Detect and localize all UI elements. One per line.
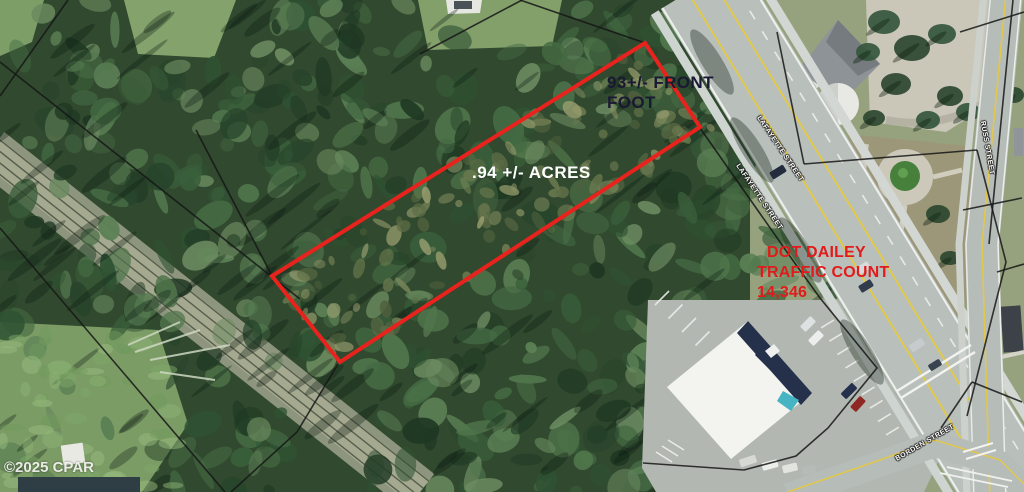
traffic-line3: 14,346 <box>757 283 889 303</box>
front-foot-annotation: 93+/- FRONT FOOT <box>607 73 714 113</box>
traffic-count-annotation: DOT DAILEY TRAFFIC COUNT 14,346 <box>757 243 889 303</box>
front-foot-line1: 93+/- FRONT <box>607 73 714 93</box>
front-foot-line2: FOOT <box>607 93 714 113</box>
copyright-watermark: ©2025 CPAR <box>4 459 94 476</box>
traffic-line1: DOT DAILEY <box>767 243 889 263</box>
acreage-annotation: .94 +/- ACRES <box>472 163 591 183</box>
traffic-line2: TRAFFIC COUNT <box>757 263 889 283</box>
aerial-map: 93+/- FRONT FOOT .94 +/- ACRES DOT DAILE… <box>0 0 1024 492</box>
east-building-roof <box>1000 305 1023 352</box>
